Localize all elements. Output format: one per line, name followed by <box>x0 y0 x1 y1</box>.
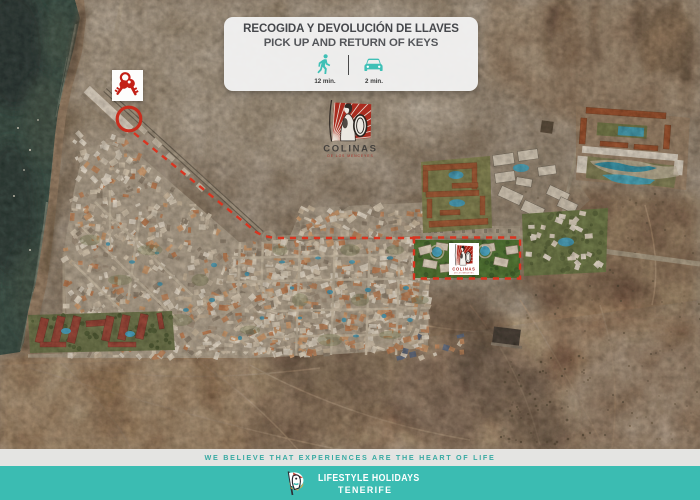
svg-text:COLINAS: COLINAS <box>323 143 377 154</box>
svg-text:COLINAS: COLINAS <box>452 266 475 271</box>
svg-text:DE LOS MENCEYES: DE LOS MENCEYES <box>327 154 373 158</box>
svg-text:DE LOS MENCEYES: DE LOS MENCEYES <box>454 272 474 274</box>
